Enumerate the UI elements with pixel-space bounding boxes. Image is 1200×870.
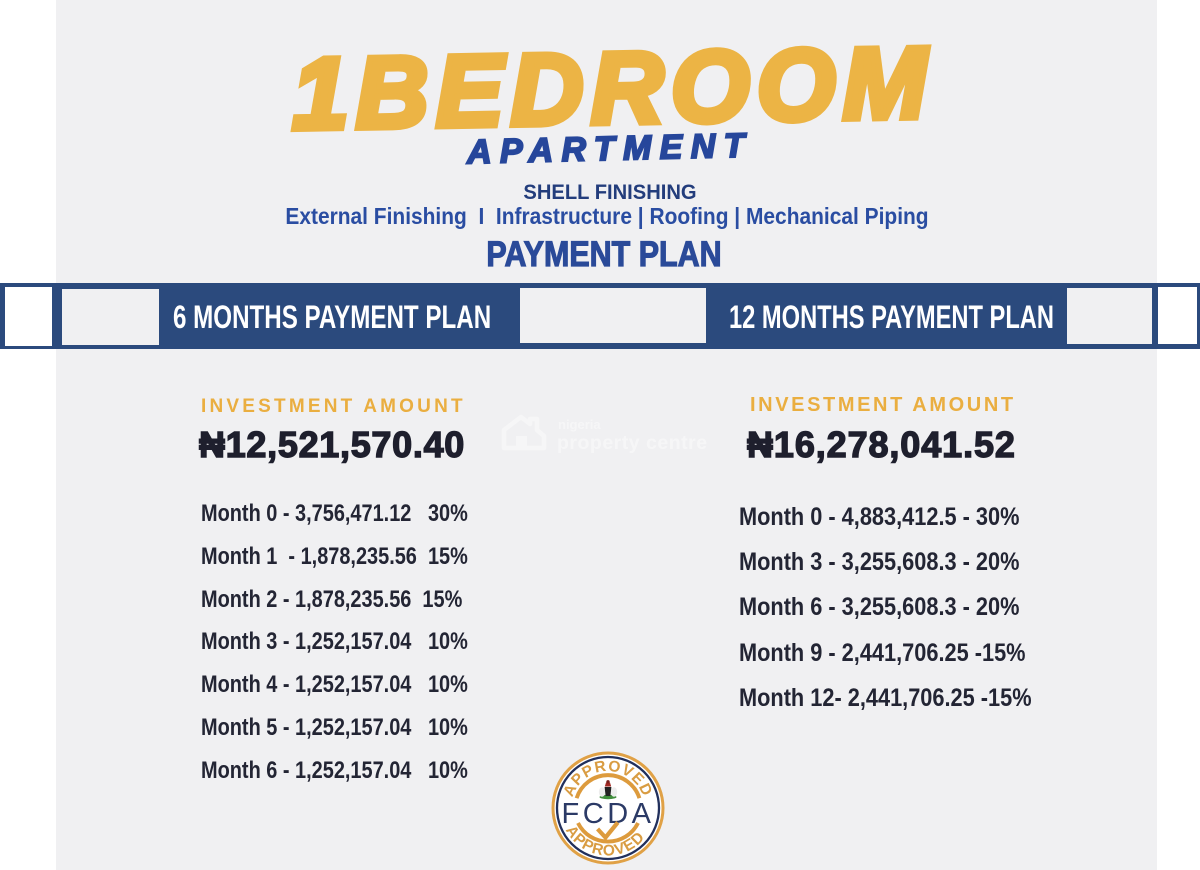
svg-text:property centre: property centre bbox=[557, 432, 708, 454]
svg-text:nigeria: nigeria bbox=[558, 417, 601, 432]
svg-text:FCDA: FCDA bbox=[562, 798, 655, 830]
